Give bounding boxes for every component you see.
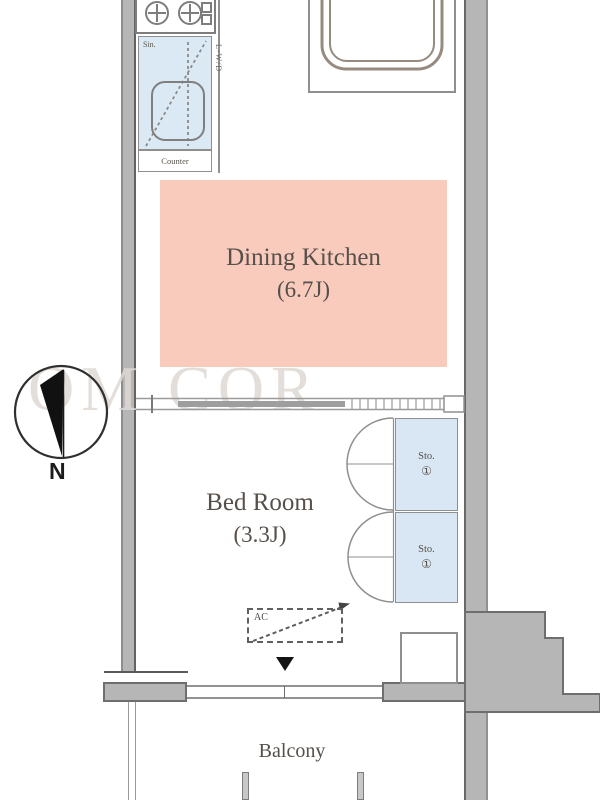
bed-room-name: Bed Room: [140, 487, 380, 520]
bathroom: [308, 0, 456, 93]
bottom-right-wall-pillar: [382, 682, 466, 702]
balcony-railing-post: [242, 772, 249, 800]
balcony-railing-post: [357, 772, 364, 800]
counter-label: Counter: [161, 156, 188, 166]
window-symbol: [187, 686, 382, 698]
left-wall: [121, 0, 136, 673]
right-wall: [464, 0, 488, 800]
bottom-left-wall-pillar: [103, 682, 187, 702]
storage-closet-2: Sto. ①: [395, 512, 458, 603]
kitchen-counter: Counter: [138, 150, 212, 172]
sink-icon: Sin.: [138, 36, 212, 150]
compass-north-label: N: [49, 458, 66, 485]
watermark-text: OM COR: [28, 352, 321, 426]
sink-label: Sin.: [143, 40, 156, 49]
room-dining-kitchen: Dining Kitchen (6.7J): [160, 180, 447, 367]
dining-kitchen-size: (6.7J): [277, 275, 330, 305]
wall-recess: [400, 632, 458, 684]
stove-icon: [135, 0, 216, 34]
laundry-space-label: L-W/D: [214, 44, 223, 72]
ac-label: AC: [254, 612, 268, 623]
storage-closet-1: Sto. ①: [395, 418, 458, 511]
floor-plan: Sin. Counter L-W/D Dining Kitchen (6.7J)…: [0, 0, 600, 800]
kitchen-divider-wall: [218, 0, 220, 173]
storage-2-label: Sto.: [418, 544, 435, 557]
balcony-label: Balcony: [192, 740, 392, 763]
storage-1-label: Sto.: [418, 451, 435, 464]
dining-kitchen-name: Dining Kitchen: [226, 242, 381, 275]
room-bed-room-label: Bed Room (3.3J): [140, 487, 380, 549]
storage-2-number: ①: [421, 557, 432, 571]
entrance-arrow-icon: [276, 657, 294, 671]
ac-unit-box: AC: [247, 608, 343, 643]
balcony-left-wall: [128, 702, 136, 800]
bed-room-size: (3.3J): [140, 520, 380, 550]
storage-1-number: ①: [421, 464, 432, 478]
